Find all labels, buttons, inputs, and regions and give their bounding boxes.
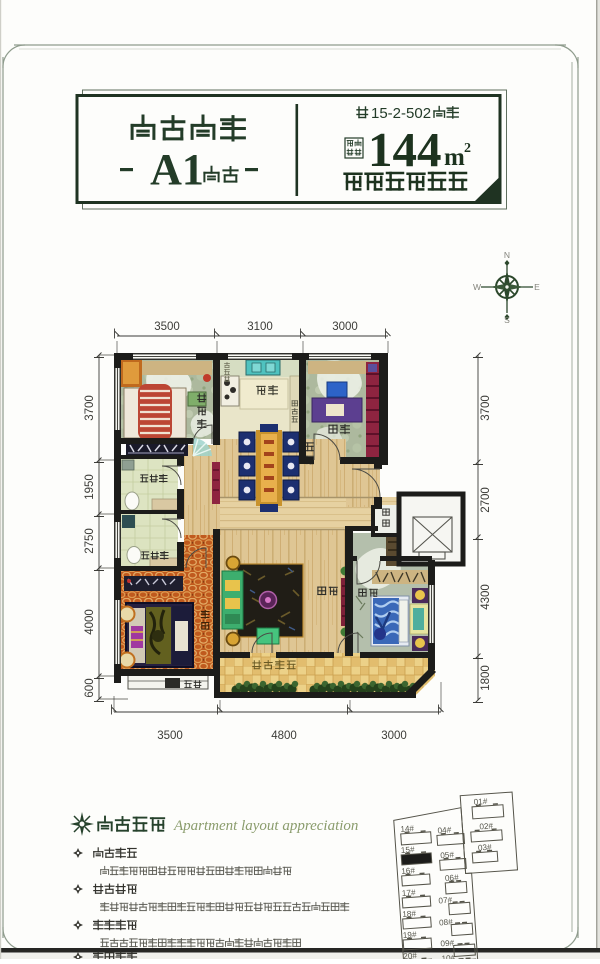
svg-text:05#: 05# [440, 850, 455, 860]
svg-text:15#: 15# [401, 845, 416, 855]
svg-text:E: E [534, 282, 540, 292]
svg-text:1950: 1950 [84, 474, 96, 500]
svg-text:18#: 18# [402, 909, 417, 919]
svg-text:14#: 14# [400, 824, 415, 834]
svg-text:01#: 01# [473, 797, 488, 807]
svg-text:4000: 4000 [84, 609, 96, 635]
svg-text:10#: 10# [441, 953, 456, 959]
svg-text:3000: 3000 [381, 730, 407, 742]
svg-text:3100: 3100 [247, 321, 273, 333]
svg-text:3500: 3500 [157, 730, 183, 742]
svg-text:2: 2 [464, 141, 471, 156]
svg-text:2750: 2750 [84, 528, 96, 554]
svg-text:20#: 20# [403, 951, 418, 959]
svg-text:04#: 04# [437, 825, 452, 835]
svg-text:W: W [473, 282, 481, 292]
svg-text:06#: 06# [445, 873, 460, 883]
svg-text:3000: 3000 [332, 321, 358, 333]
svg-text:08#: 08# [439, 918, 454, 928]
svg-text:N: N [504, 250, 510, 260]
svg-text:4300: 4300 [480, 584, 492, 610]
svg-text:1800: 1800 [480, 665, 492, 691]
svg-text:2700: 2700 [480, 487, 492, 513]
svg-text:07#: 07# [438, 895, 453, 905]
svg-text:144: 144 [368, 122, 442, 177]
svg-text:19#: 19# [402, 930, 417, 940]
svg-text:15-2-502: 15-2-502 [371, 105, 431, 122]
svg-text:3500: 3500 [154, 321, 180, 333]
svg-text:09#: 09# [440, 938, 455, 948]
svg-text:3700: 3700 [480, 395, 492, 421]
svg-text:A1: A1 [150, 145, 204, 194]
svg-text:02#: 02# [479, 821, 494, 831]
svg-text:S: S [504, 315, 510, 325]
svg-text:4800: 4800 [271, 730, 297, 742]
svg-text:16#: 16# [401, 866, 416, 876]
svg-text:600: 600 [84, 678, 96, 697]
svg-text:Apartment layout appreciation: Apartment layout appreciation [173, 818, 358, 834]
svg-text:03#: 03# [478, 843, 493, 853]
svg-text:m: m [444, 144, 465, 171]
svg-text:3700: 3700 [84, 395, 96, 421]
svg-text:17#: 17# [402, 888, 417, 898]
